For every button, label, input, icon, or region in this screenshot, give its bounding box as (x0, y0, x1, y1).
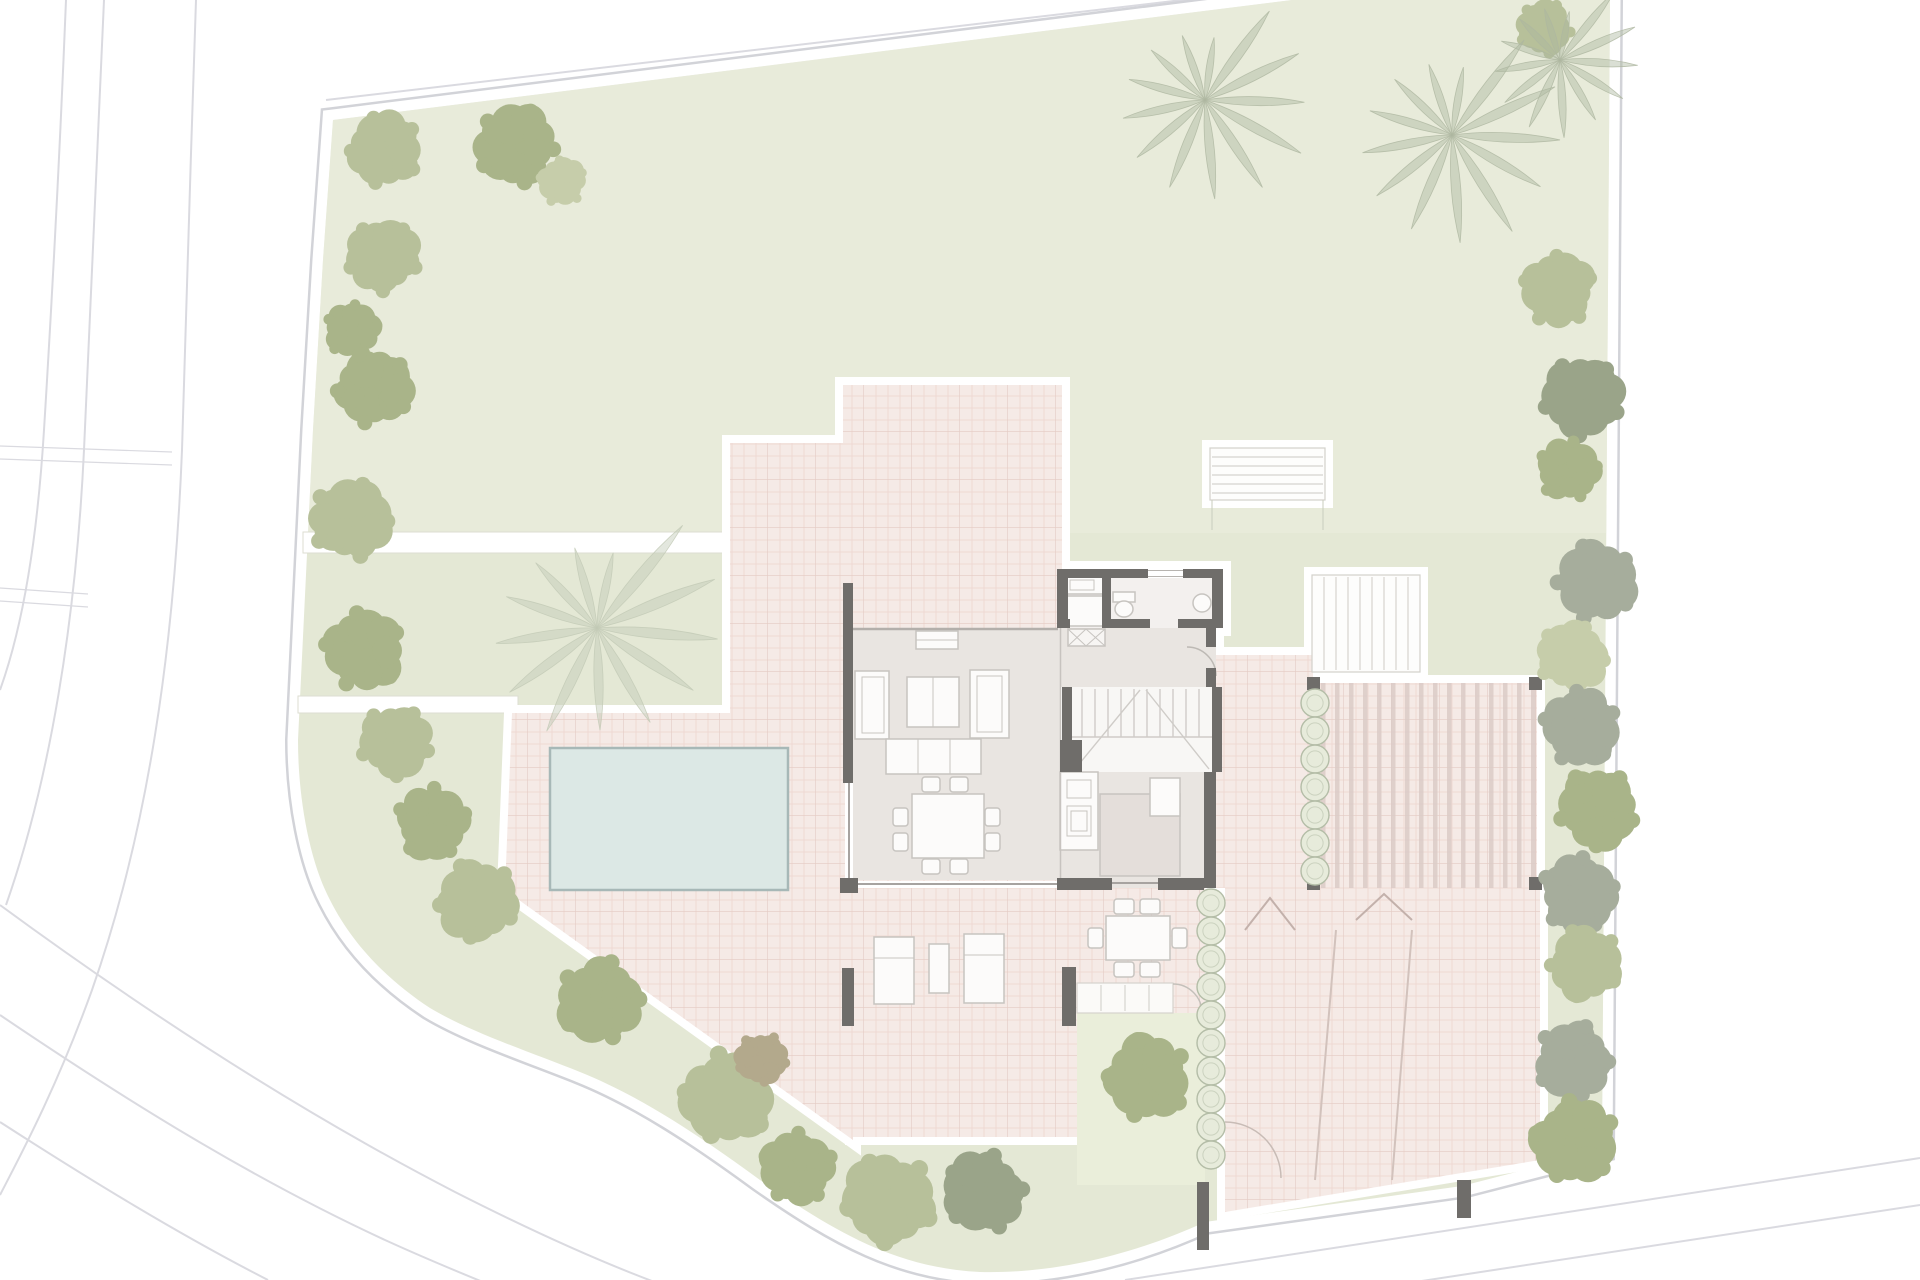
road-curve (0, 1015, 520, 1280)
wall-bath-partition (1102, 578, 1111, 628)
hedge-bush-icon (1197, 1057, 1225, 1085)
gate-post-right (1457, 1180, 1471, 1218)
wall-living-west (843, 583, 853, 783)
hedge-bush-icon (1301, 689, 1329, 717)
swimming-pool (550, 748, 788, 890)
hedge-bush-icon (1197, 945, 1225, 973)
hedge-bush-icon (1197, 917, 1225, 945)
sidewalk-line (0, 446, 172, 607)
wall-bath-south-1 (1057, 619, 1070, 628)
wall-south-1 (1057, 878, 1112, 890)
wall-bath-south-2 (1108, 619, 1150, 628)
wall-kitchen-east (1204, 772, 1216, 888)
hedge-bush-icon (1301, 745, 1329, 773)
toilet (1113, 592, 1135, 617)
pergola-post (1307, 677, 1320, 690)
sun-lounger-right (964, 934, 1004, 1003)
sun-lounger-left (874, 937, 914, 1004)
stair-floor (1062, 687, 1222, 772)
gate-post-left (1197, 1182, 1209, 1250)
wall-hall-east-1 (1206, 628, 1216, 647)
wall-stair-block (1060, 740, 1082, 772)
east-terrace-strip (1216, 655, 1313, 888)
site-plan-canvas (0, 0, 1920, 1280)
lounge-side-table (929, 944, 949, 993)
road-line (0, 0, 66, 690)
hedge-bush-icon (1197, 889, 1225, 917)
hedge-bush-icon (1197, 1029, 1225, 1057)
sofa-bottom (886, 739, 981, 774)
hedge-bush-icon (1301, 829, 1329, 857)
driveway (1225, 888, 1540, 1212)
hedge-bush-icon (1197, 1141, 1225, 1169)
hedge-bush-icon (1197, 1113, 1225, 1141)
coffee-table (907, 677, 959, 727)
sofa-right (970, 670, 1009, 738)
hedge-bush-icon (1197, 1085, 1225, 1113)
sofa-left (855, 671, 889, 739)
hedge-bush-icon (1197, 973, 1225, 1001)
dining-table (912, 794, 984, 858)
wall-bath-north-left (1057, 569, 1148, 578)
shower (1066, 596, 1103, 626)
hedge-bush-icon (1301, 857, 1329, 885)
bathroom-vanity (1066, 577, 1103, 594)
site-plan-drawing (0, 0, 1920, 1280)
upper-terrace (843, 385, 1062, 628)
closet (1068, 629, 1105, 646)
hedge-bush-icon (1301, 801, 1329, 829)
hedge-bush-icon (1301, 773, 1329, 801)
pergola-beams (1313, 683, 1537, 888)
pergola-post (1529, 677, 1542, 690)
wall-bath-south-3 (1178, 619, 1223, 628)
road-curve (0, 1122, 268, 1280)
road-line-bottom (1330, 1205, 1920, 1280)
hedge-bush-icon (1301, 717, 1329, 745)
wash-basin (1193, 594, 1211, 612)
wall-corner-southwest (840, 878, 858, 893)
wall-hall-east-2 (1206, 668, 1216, 687)
road-line (0, 0, 196, 1195)
pillar-terrace-right (1062, 967, 1076, 1026)
pillar-terrace-left (842, 968, 854, 1026)
wall-south-2 (1158, 878, 1204, 890)
tv-sideboard (916, 631, 958, 649)
exterior-stair-east (1312, 575, 1420, 672)
road-line (6, 0, 104, 905)
hedge-bush-icon (1197, 1001, 1225, 1029)
wall-stair-east (1212, 687, 1222, 772)
outdoor-table (1106, 916, 1170, 960)
kitchen-counter (1060, 772, 1098, 850)
